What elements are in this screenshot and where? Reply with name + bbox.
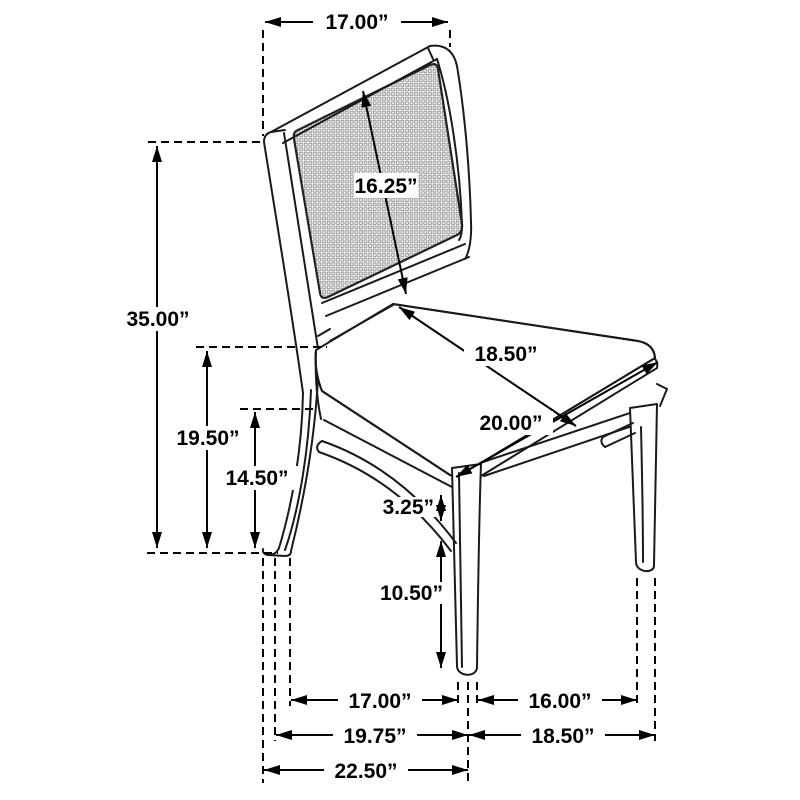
dim-floor-front-span: 17.00” xyxy=(291,689,458,713)
front-right-leg xyxy=(630,404,657,571)
dimension-diagram: 17.00” 16.25” 35.00” 19.50” 14.50” 18.50… xyxy=(0,0,800,800)
back-diagonal-label: 16.25” xyxy=(354,175,417,198)
dim-seat-height: 19.50” xyxy=(168,347,327,548)
floor-front-span-label: 17.00” xyxy=(348,690,411,713)
overall-height-label: 35.00” xyxy=(126,308,189,331)
seat-height-label: 19.50” xyxy=(176,427,239,450)
dim-floor-side-span: 16.00” xyxy=(478,689,637,713)
floor-width-label: 18.50” xyxy=(531,725,594,748)
floor-depth-label: 19.75” xyxy=(343,725,406,748)
leg-height-label: 10.50” xyxy=(380,582,443,605)
seat-diagonal-b-label: 20.00” xyxy=(479,412,542,435)
chair-dimension-drawing: 17.00” 16.25” 35.00” 19.50” 14.50” 18.50… xyxy=(0,0,800,800)
overall-depth-label: 22.50” xyxy=(334,760,397,783)
dim-overall-depth: 22.50” xyxy=(264,759,468,783)
back-width-label: 17.00” xyxy=(325,11,388,34)
dim-floor-width: 18.50” xyxy=(469,724,655,748)
dim-floor-depth: 19.75” xyxy=(276,724,468,748)
dim-apron-thickness: 3.25” xyxy=(383,495,441,521)
floor-side-span-label: 16.00” xyxy=(528,690,591,713)
seat-diagonal-a-label: 18.50” xyxy=(474,343,537,366)
front-left-leg xyxy=(452,464,481,675)
dim-leg-height: 10.50” xyxy=(380,541,444,668)
underframe-height-label: 14.50” xyxy=(225,467,288,490)
apron-thickness-label: 3.25” xyxy=(383,496,434,519)
